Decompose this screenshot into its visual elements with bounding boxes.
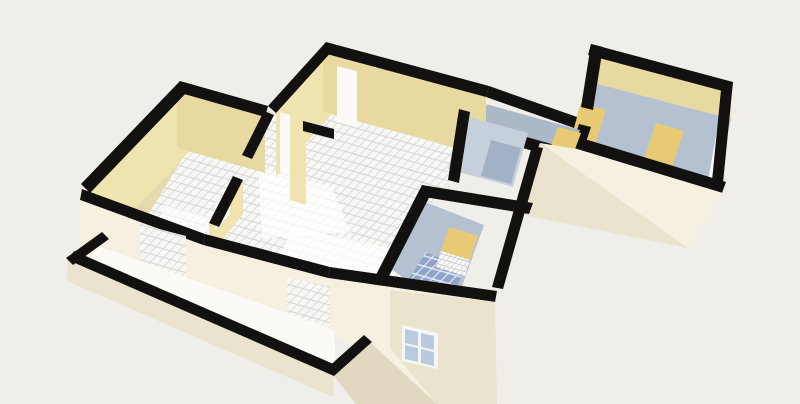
- living-room-north-door: [337, 66, 357, 127]
- partition-door-white: [280, 112, 290, 175]
- floorplan-viewport: [0, 0, 800, 404]
- floorplan-canvas: [0, 0, 800, 404]
